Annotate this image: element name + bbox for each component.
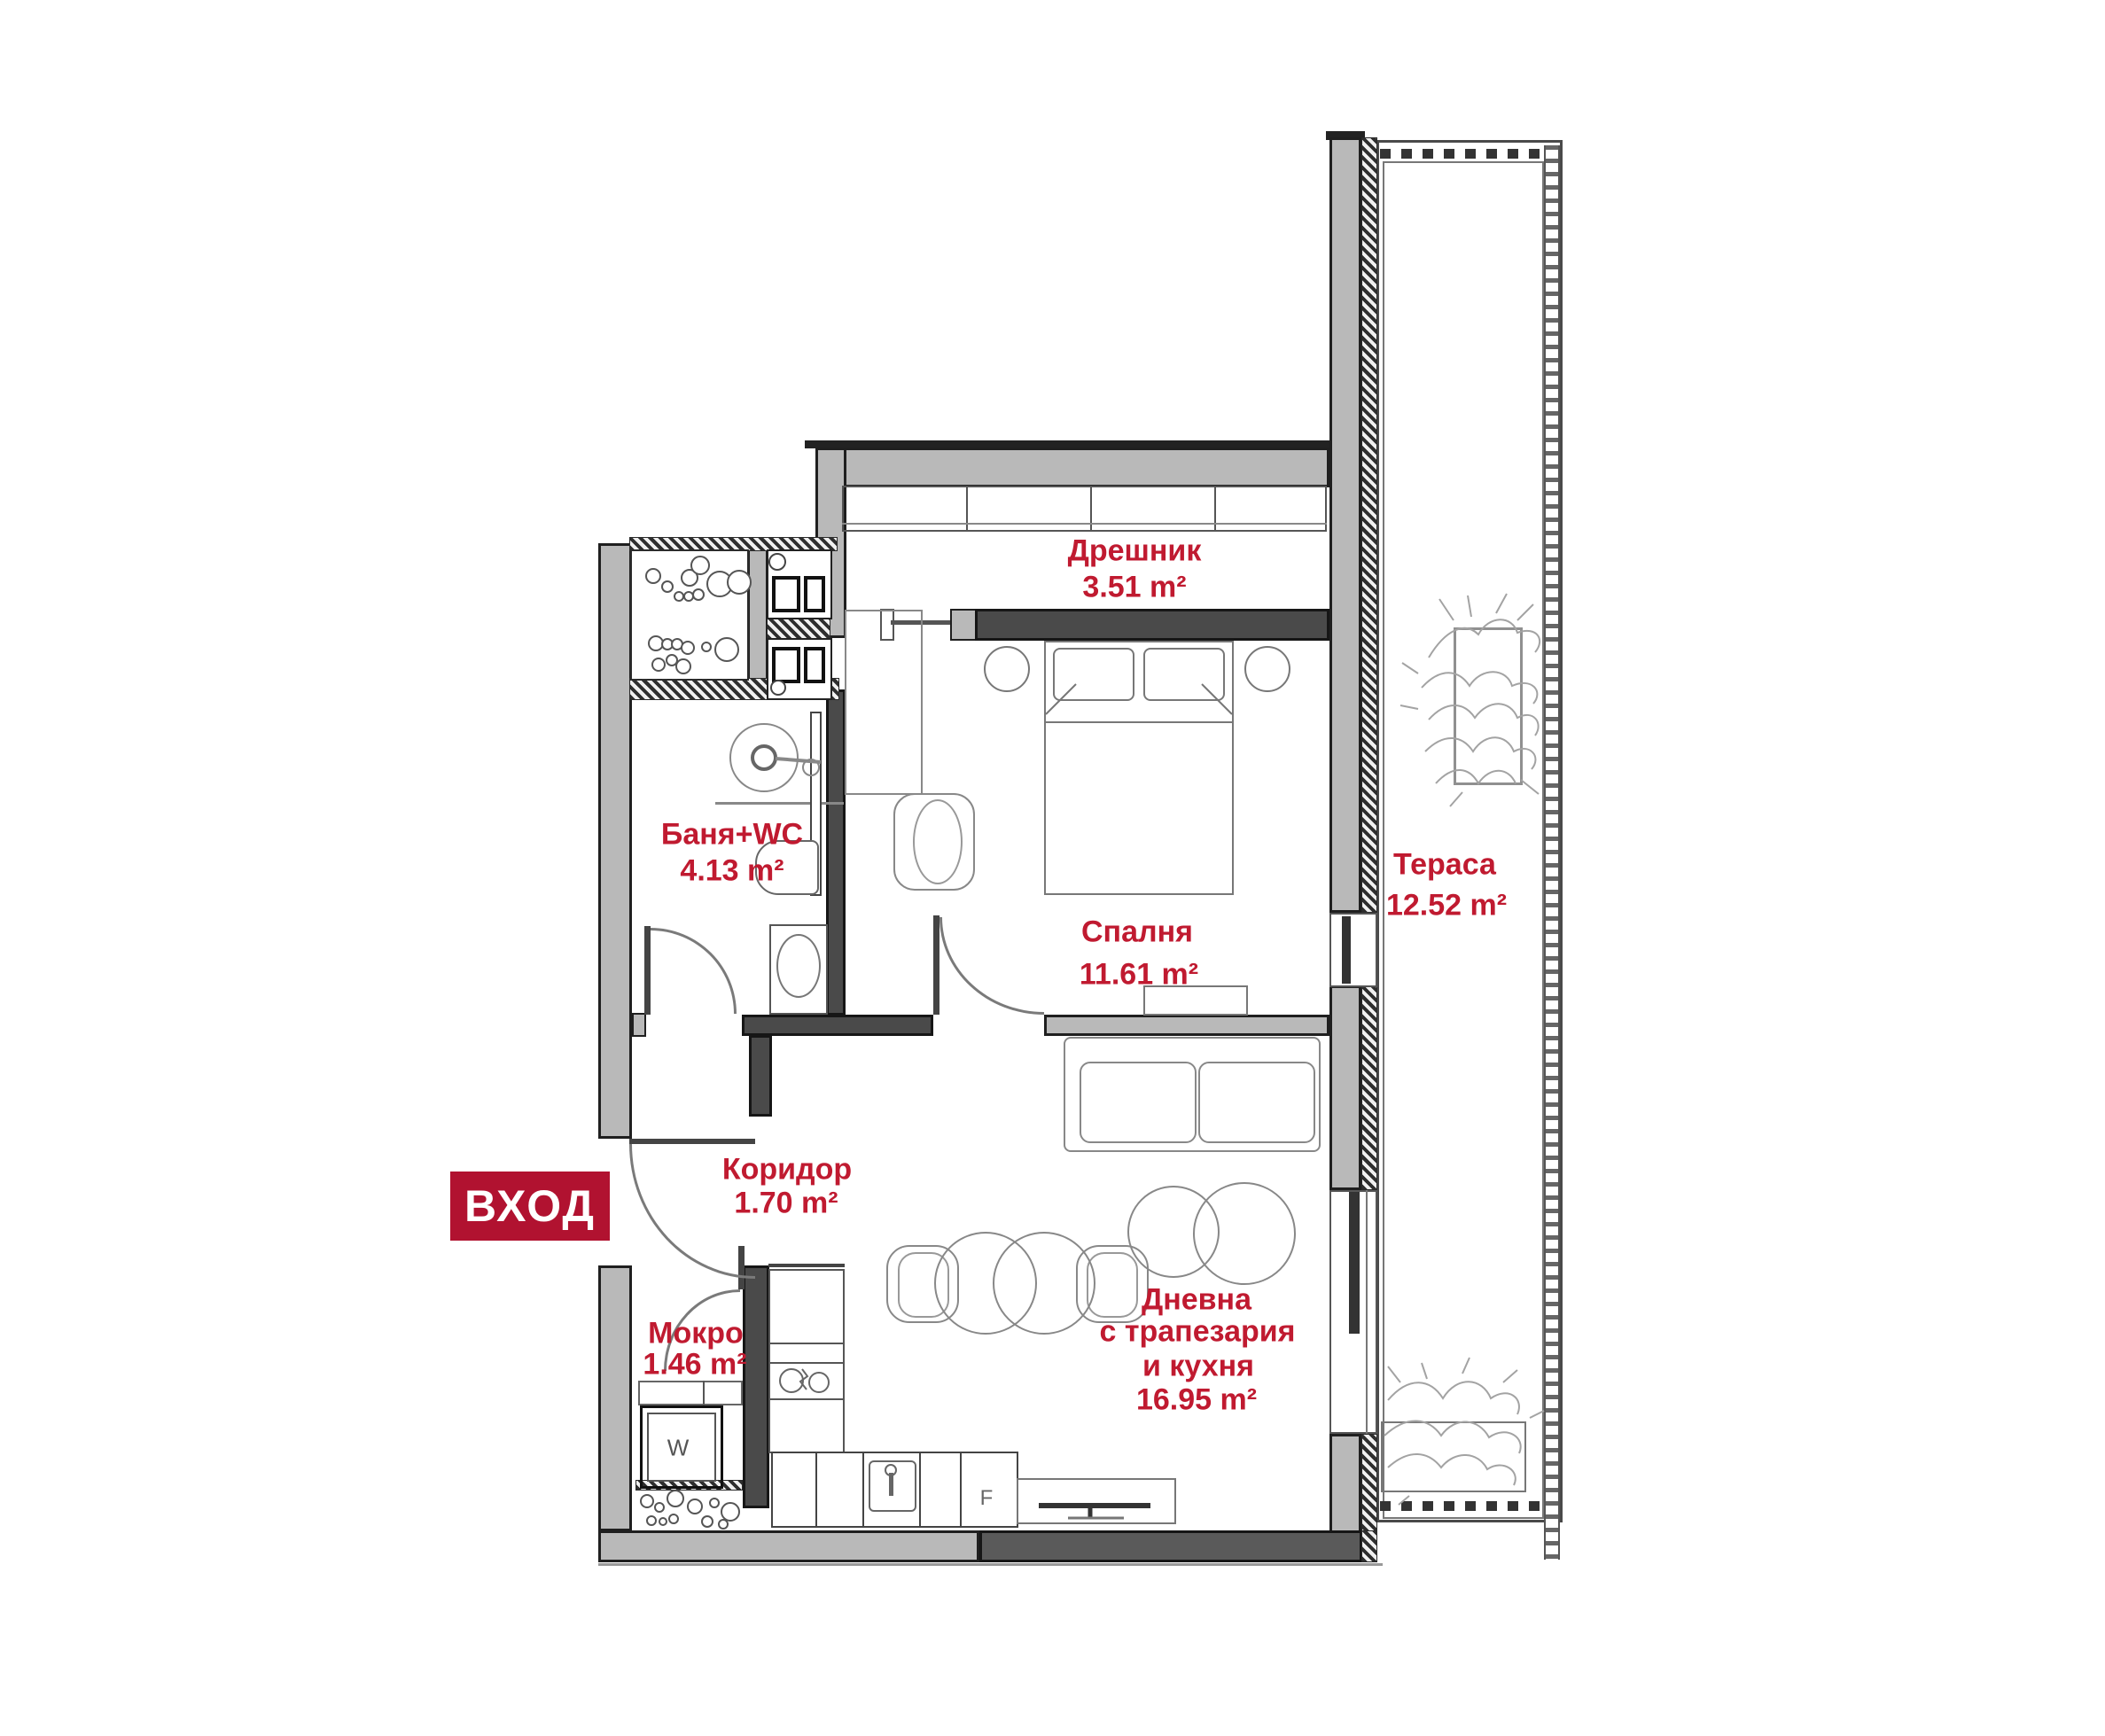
fridge-label: F (980, 1486, 994, 1511)
label-spalnya-name: Спалня (1081, 915, 1193, 950)
plant-bottom-icon (1384, 1358, 1544, 1505)
bed-fold-lines (1046, 684, 1232, 714)
plant-top-icon (1400, 594, 1540, 806)
cooktop-icon (780, 1369, 829, 1392)
label-koridor-area: 1.70 m² (734, 1187, 838, 1221)
label-banya-name: Баня+WC (661, 818, 803, 852)
floor-plan: ВХОД (0, 0, 2105, 1736)
label-dreshnik-area: 3.51 m² (1082, 571, 1186, 605)
shower-head-icon (730, 724, 821, 791)
gravel-stones-icon (646, 557, 751, 673)
label-dnevna-line2: с трапезария (1100, 1315, 1296, 1350)
label-dreshnik-name: Дрешник (1068, 534, 1202, 569)
label-mokro-area: 1.46 m² (643, 1348, 746, 1382)
tv-icon (1039, 1506, 1150, 1518)
label-banya-area: 4.13 m² (680, 854, 784, 889)
label-spalnya-area: 11.61 m² (1080, 958, 1198, 993)
label-dnevna-area: 16.95 m² (1136, 1383, 1257, 1418)
mokro-pebbles-icon (641, 1491, 739, 1529)
washer-label: W (667, 1435, 690, 1462)
detail-overlay (0, 0, 2105, 1736)
label-dnevna-line3: и кухня (1142, 1350, 1254, 1384)
label-mokro-name: Мокро (648, 1317, 744, 1351)
label-dnevna-line1: Дневна (1142, 1283, 1251, 1318)
label-terasa-area: 12.52 m² (1386, 889, 1507, 923)
label-koridor-name: Коридор (722, 1153, 852, 1187)
shaft-circles-icon (769, 554, 785, 695)
label-terasa-name: Тераса (1393, 848, 1496, 883)
